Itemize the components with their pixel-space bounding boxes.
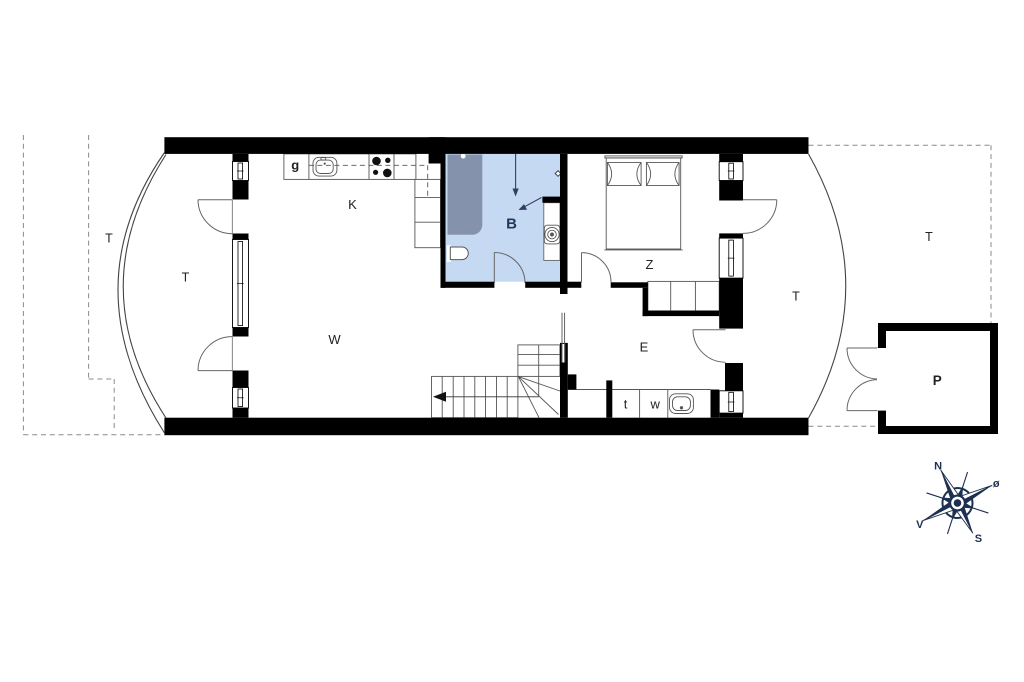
svg-text:B: B — [506, 215, 517, 232]
svg-text:S: S — [975, 533, 982, 545]
svg-text:Z: Z — [646, 257, 654, 272]
svg-text:K: K — [348, 197, 357, 212]
svg-text:T: T — [182, 270, 190, 284]
svg-text:ø: ø — [993, 478, 1000, 490]
svg-text:T: T — [105, 231, 113, 245]
svg-text:T: T — [792, 289, 800, 303]
svg-text:P: P — [933, 373, 942, 388]
svg-text:N: N — [934, 460, 942, 472]
svg-text:g: g — [291, 157, 299, 172]
svg-text:V: V — [916, 519, 924, 531]
svg-text:T: T — [925, 230, 933, 244]
svg-text:w: w — [650, 396, 661, 411]
svg-text:W: W — [328, 332, 341, 347]
svg-text:E: E — [640, 340, 649, 355]
svg-text:t: t — [624, 396, 628, 411]
